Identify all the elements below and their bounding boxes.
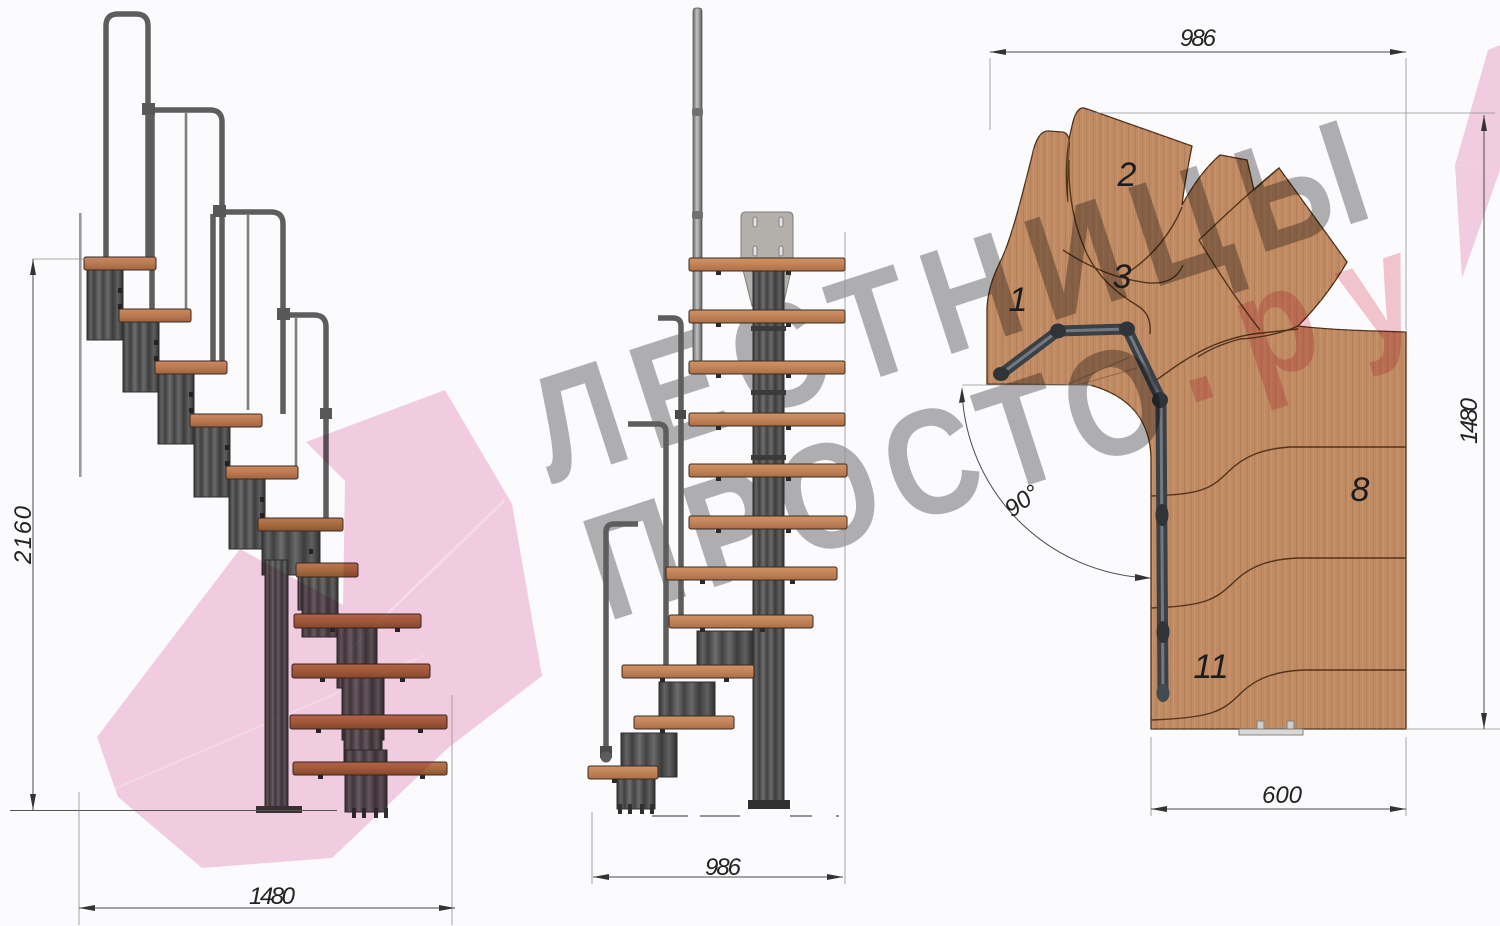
svg-text:2160: 2160: [10, 505, 37, 565]
svg-text:986: 986: [1180, 25, 1217, 52]
svg-text:600: 600: [1262, 782, 1303, 809]
svg-text:8: 8: [1351, 471, 1370, 509]
svg-text:2: 2: [1117, 156, 1137, 194]
svg-text:1480: 1480: [1456, 397, 1483, 444]
svg-text:11: 11: [1193, 648, 1228, 686]
svg-text:986: 986: [705, 854, 742, 881]
svg-text:1: 1: [1009, 281, 1028, 319]
svg-text:3: 3: [1113, 258, 1132, 296]
svg-text:1480: 1480: [249, 883, 296, 910]
